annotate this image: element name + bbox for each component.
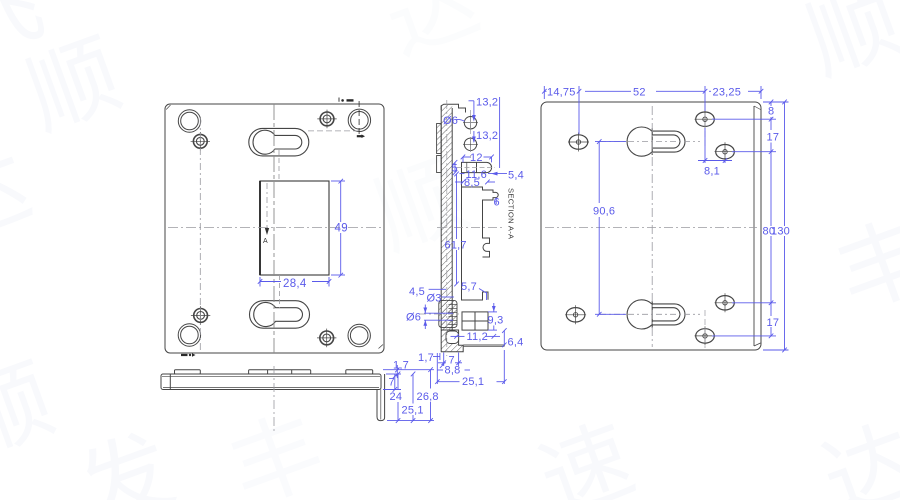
svg-text:Ø3: Ø3: [427, 293, 442, 305]
svg-text:8,5: 8,5: [464, 177, 480, 189]
svg-text:25,1: 25,1: [402, 405, 424, 417]
svg-text:Ø6: Ø6: [406, 312, 421, 324]
svg-text:61,7: 61,7: [445, 240, 467, 252]
svg-text:49: 49: [335, 223, 348, 235]
svg-text:90,6: 90,6: [593, 206, 615, 218]
svg-text:4,5: 4,5: [409, 286, 425, 298]
svg-text:8,8: 8,8: [445, 365, 461, 377]
svg-text:12: 12: [470, 152, 483, 164]
svg-text:5,4: 5,4: [508, 170, 524, 182]
svg-text:23,25: 23,25: [713, 87, 742, 99]
svg-text:24: 24: [390, 391, 403, 403]
svg-text:8: 8: [768, 106, 774, 118]
svg-text:26,8: 26,8: [417, 391, 439, 403]
svg-text:5: 5: [452, 163, 458, 175]
svg-text:SECTION A-A: SECTION A-A: [507, 188, 516, 240]
svg-text:17: 17: [767, 317, 780, 329]
svg-text:5,7: 5,7: [461, 281, 477, 293]
svg-text:7: 7: [389, 377, 395, 389]
svg-text:17: 17: [767, 132, 780, 144]
svg-text:130: 130: [771, 226, 790, 238]
svg-text:8,1: 8,1: [704, 166, 720, 178]
svg-text:13,2: 13,2: [476, 97, 498, 109]
svg-text:1,7: 1,7: [418, 352, 434, 364]
svg-text:6: 6: [494, 197, 500, 209]
svg-text:25,1: 25,1: [462, 376, 484, 388]
svg-text:1,7: 1,7: [393, 360, 409, 372]
svg-text:13,2: 13,2: [476, 130, 498, 142]
svg-text:6,4: 6,4: [508, 337, 524, 349]
svg-text:9,3: 9,3: [488, 315, 504, 327]
svg-text:28,4: 28,4: [283, 278, 307, 290]
svg-text:14,75: 14,75: [547, 87, 576, 99]
svg-text:11,2: 11,2: [467, 331, 488, 343]
svg-text:A: A: [263, 238, 268, 245]
svg-text:Ø6: Ø6: [443, 115, 458, 127]
svg-text:52: 52: [633, 87, 646, 99]
